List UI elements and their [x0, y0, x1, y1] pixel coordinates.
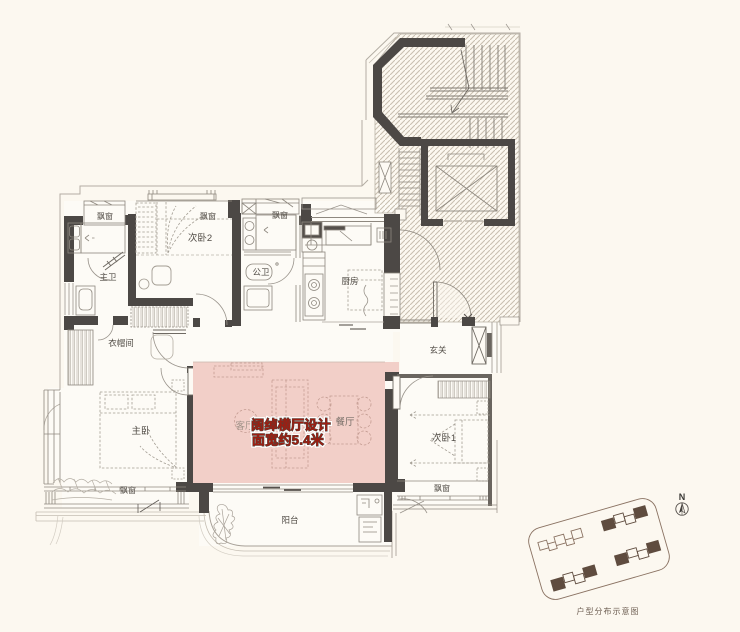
svg-text:主卧: 主卧	[131, 425, 151, 437]
svg-text:餐厅: 餐厅	[335, 416, 355, 428]
svg-text:飘窗: 飘窗	[434, 483, 450, 493]
svg-text:飘窗: 飘窗	[97, 211, 113, 221]
svg-text:主卫: 主卫	[99, 272, 117, 282]
svg-text:玄关: 玄关	[429, 345, 447, 355]
svg-text:公卫: 公卫	[252, 267, 270, 277]
svg-text:飘窗: 飘窗	[272, 210, 288, 220]
svg-text:阳台: 阳台	[281, 515, 298, 525]
svg-text:次卧2: 次卧2	[188, 232, 212, 244]
svg-text:次卧1: 次卧1	[432, 432, 456, 444]
svg-text:衣帽间: 衣帽间	[108, 338, 134, 348]
svg-text:厨房: 厨房	[341, 276, 358, 286]
svg-text:飘窗: 飘窗	[120, 485, 136, 495]
svg-text:N: N	[679, 492, 686, 502]
svg-text:飘窗: 飘窗	[200, 211, 216, 221]
svg-text:面宽约5.4米: 面宽约5.4米	[252, 433, 325, 448]
svg-text:阔绰横厅设计: 阔绰横厅设计	[251, 418, 331, 433]
svg-text:户型分布示意图: 户型分布示意图	[577, 606, 640, 616]
